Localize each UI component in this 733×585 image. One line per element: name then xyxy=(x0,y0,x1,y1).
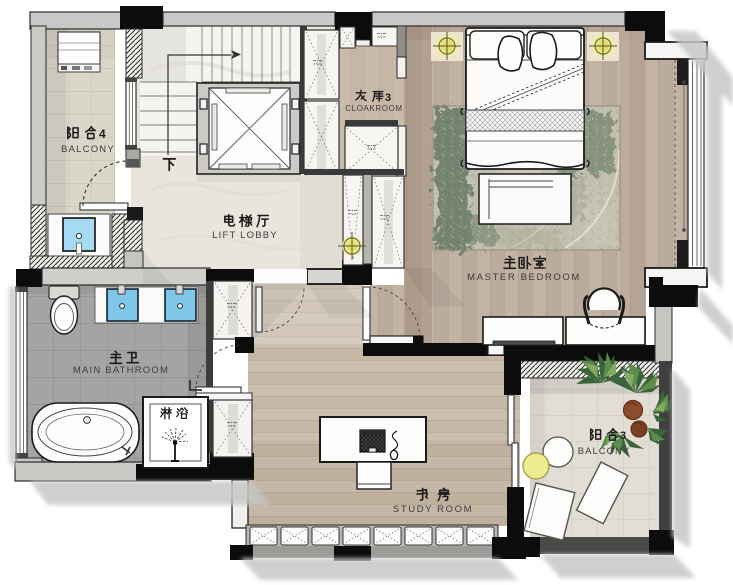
svg-text:MASTER BEDROOM: MASTER BEDROOM xyxy=(467,272,581,283)
svg-text:LIFT LOBBY: LIFT LOBBY xyxy=(212,230,278,241)
svg-text:BALCONY: BALCONY xyxy=(61,144,115,155)
svg-text:STUDY ROOM: STUDY ROOM xyxy=(393,504,473,515)
svg-text:MAIN BATHROOM: MAIN BATHROOM xyxy=(73,365,169,376)
svg-text:3: 3 xyxy=(620,430,626,442)
svg-text:CLOAKROOM: CLOAKROOM xyxy=(345,104,402,113)
svg-text:4: 4 xyxy=(99,127,106,141)
svg-text:3: 3 xyxy=(385,92,391,104)
svg-text:BALCONY: BALCONY xyxy=(578,446,630,457)
